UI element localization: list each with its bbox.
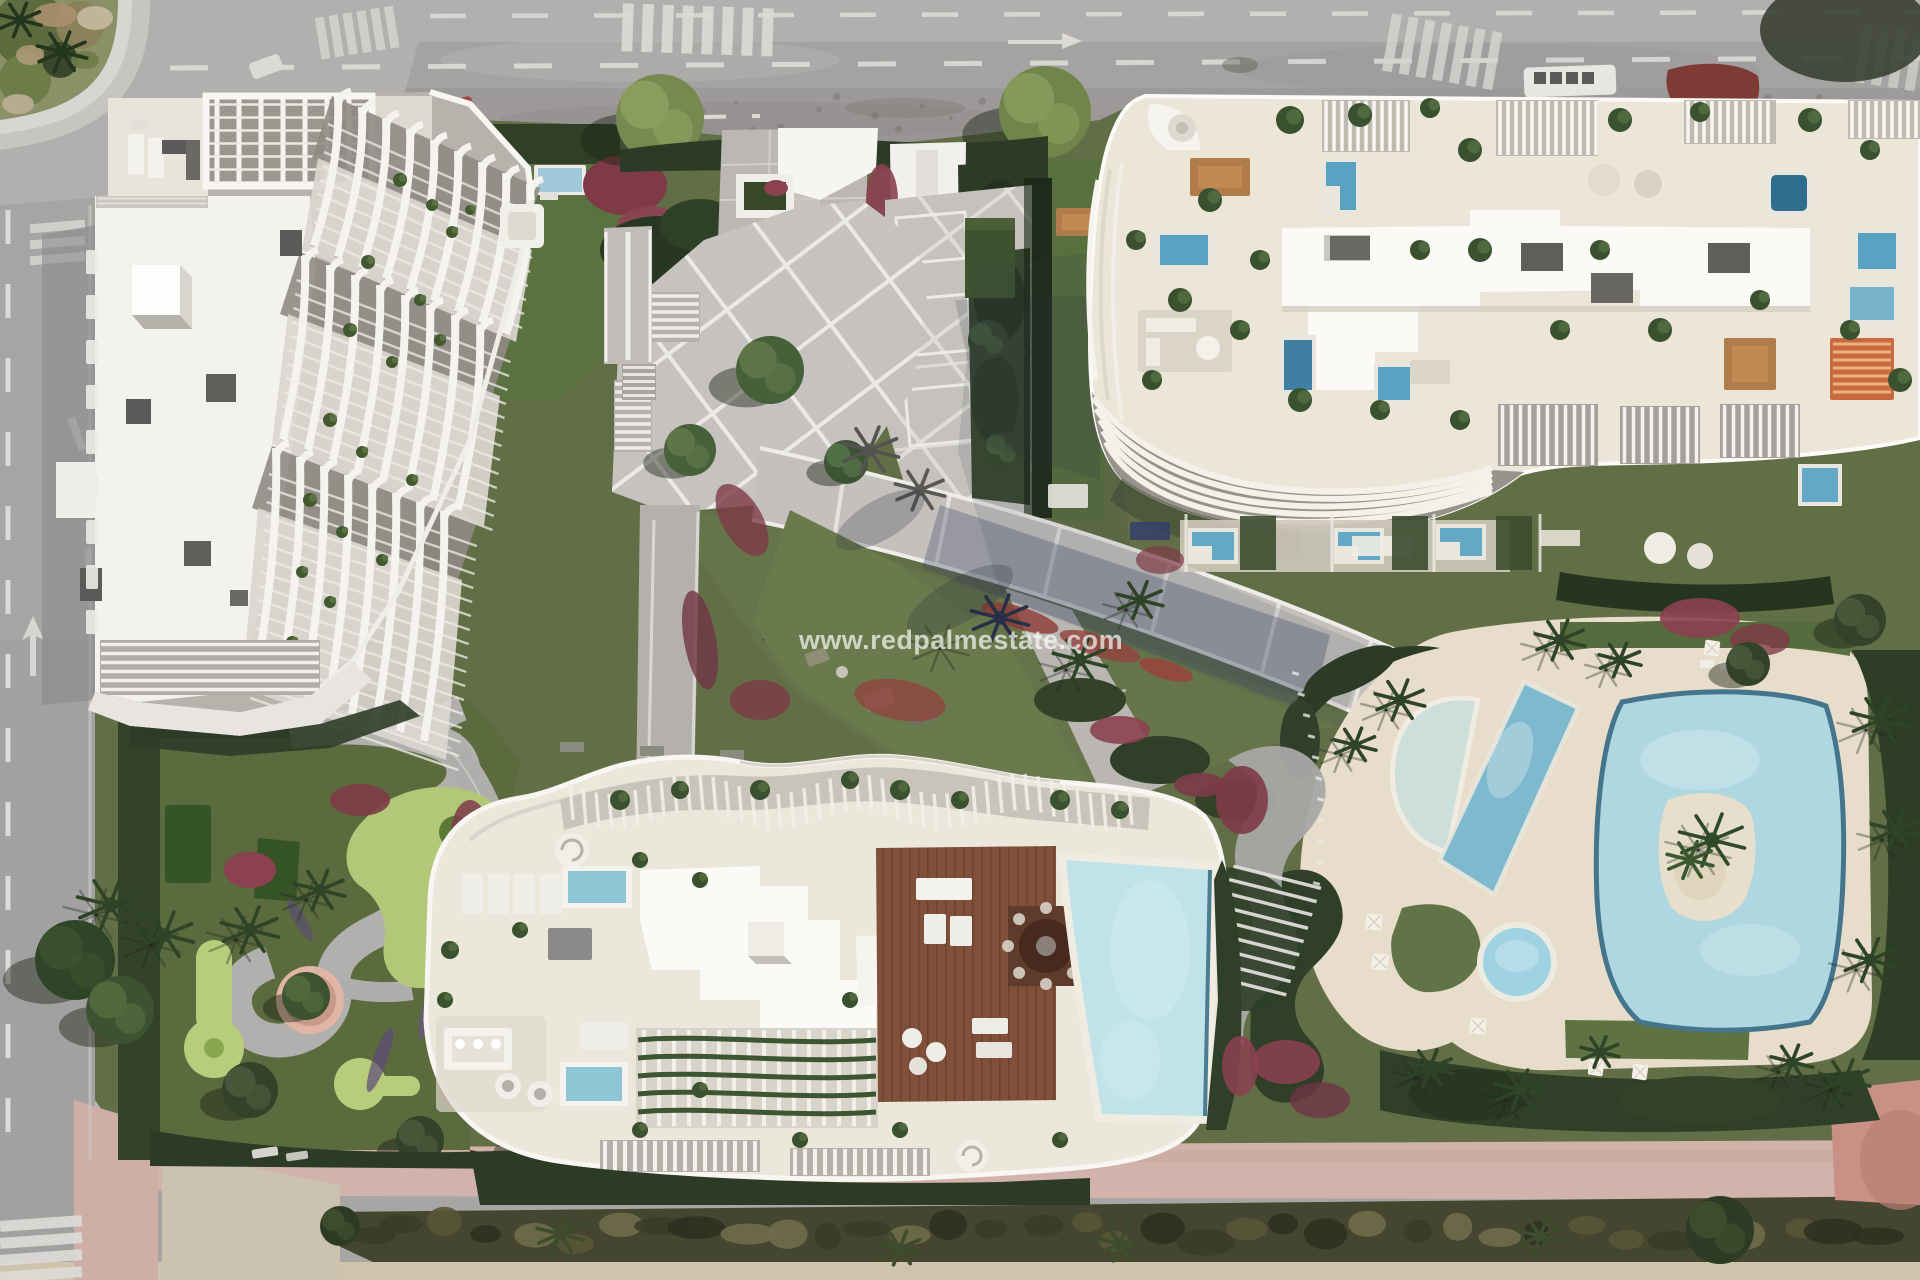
svg-text:www.redpalmestate.com: www.redpalmestate.com: [798, 625, 1123, 655]
